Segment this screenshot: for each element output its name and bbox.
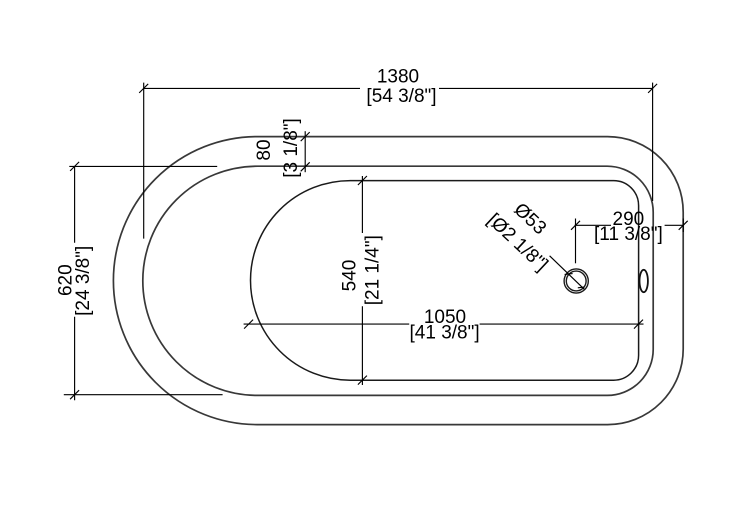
svg-text:1380: 1380 [377, 67, 419, 88]
svg-text:[3 1/8"]: [3 1/8"] [281, 118, 302, 178]
svg-text:[41 3/8"]: [41 3/8"] [410, 323, 480, 344]
svg-text:540: 540 [340, 260, 361, 292]
svg-text:[24 3/8"]: [24 3/8"] [73, 246, 94, 316]
svg-text:[54 3/8"]: [54 3/8"] [366, 86, 436, 107]
svg-text:[11 3/8"]: [11 3/8"] [594, 224, 663, 245]
svg-text:[21 1/4"]: [21 1/4"] [363, 235, 384, 305]
svg-text:80: 80 [254, 139, 275, 160]
